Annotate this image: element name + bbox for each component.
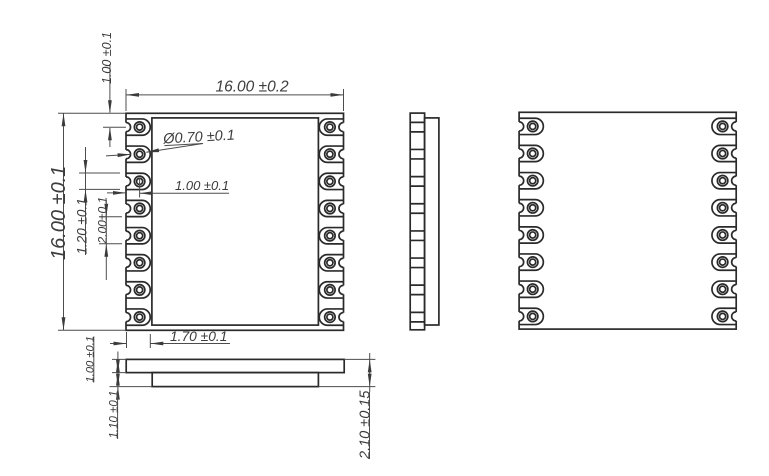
svg-text:Ø0.70 ±0.1: Ø0.70 ±0.1 xyxy=(162,128,235,148)
svg-text:2.10 ±0.15: 2.10 ±0.15 xyxy=(357,390,373,460)
svg-text:1.00 ±0.1: 1.00 ±0.1 xyxy=(85,336,97,383)
svg-text:2.00±0.1: 2.00±0.1 xyxy=(96,197,110,245)
svg-text:1.20 ±0.1: 1.20 ±0.1 xyxy=(74,198,89,254)
svg-text:1.70 ±0.1: 1.70 ±0.1 xyxy=(170,329,227,344)
svg-text:1.00 ±0.1: 1.00 ±0.1 xyxy=(100,32,114,84)
svg-text:16.00 ±0.1: 16.00 ±0.1 xyxy=(48,166,70,260)
svg-text:1.10 ±0.1: 1.10 ±0.1 xyxy=(108,391,120,439)
svg-text:16.00 ±0.2: 16.00 ±0.2 xyxy=(216,79,290,96)
svg-text:1.00 ±0.1: 1.00 ±0.1 xyxy=(175,178,229,193)
